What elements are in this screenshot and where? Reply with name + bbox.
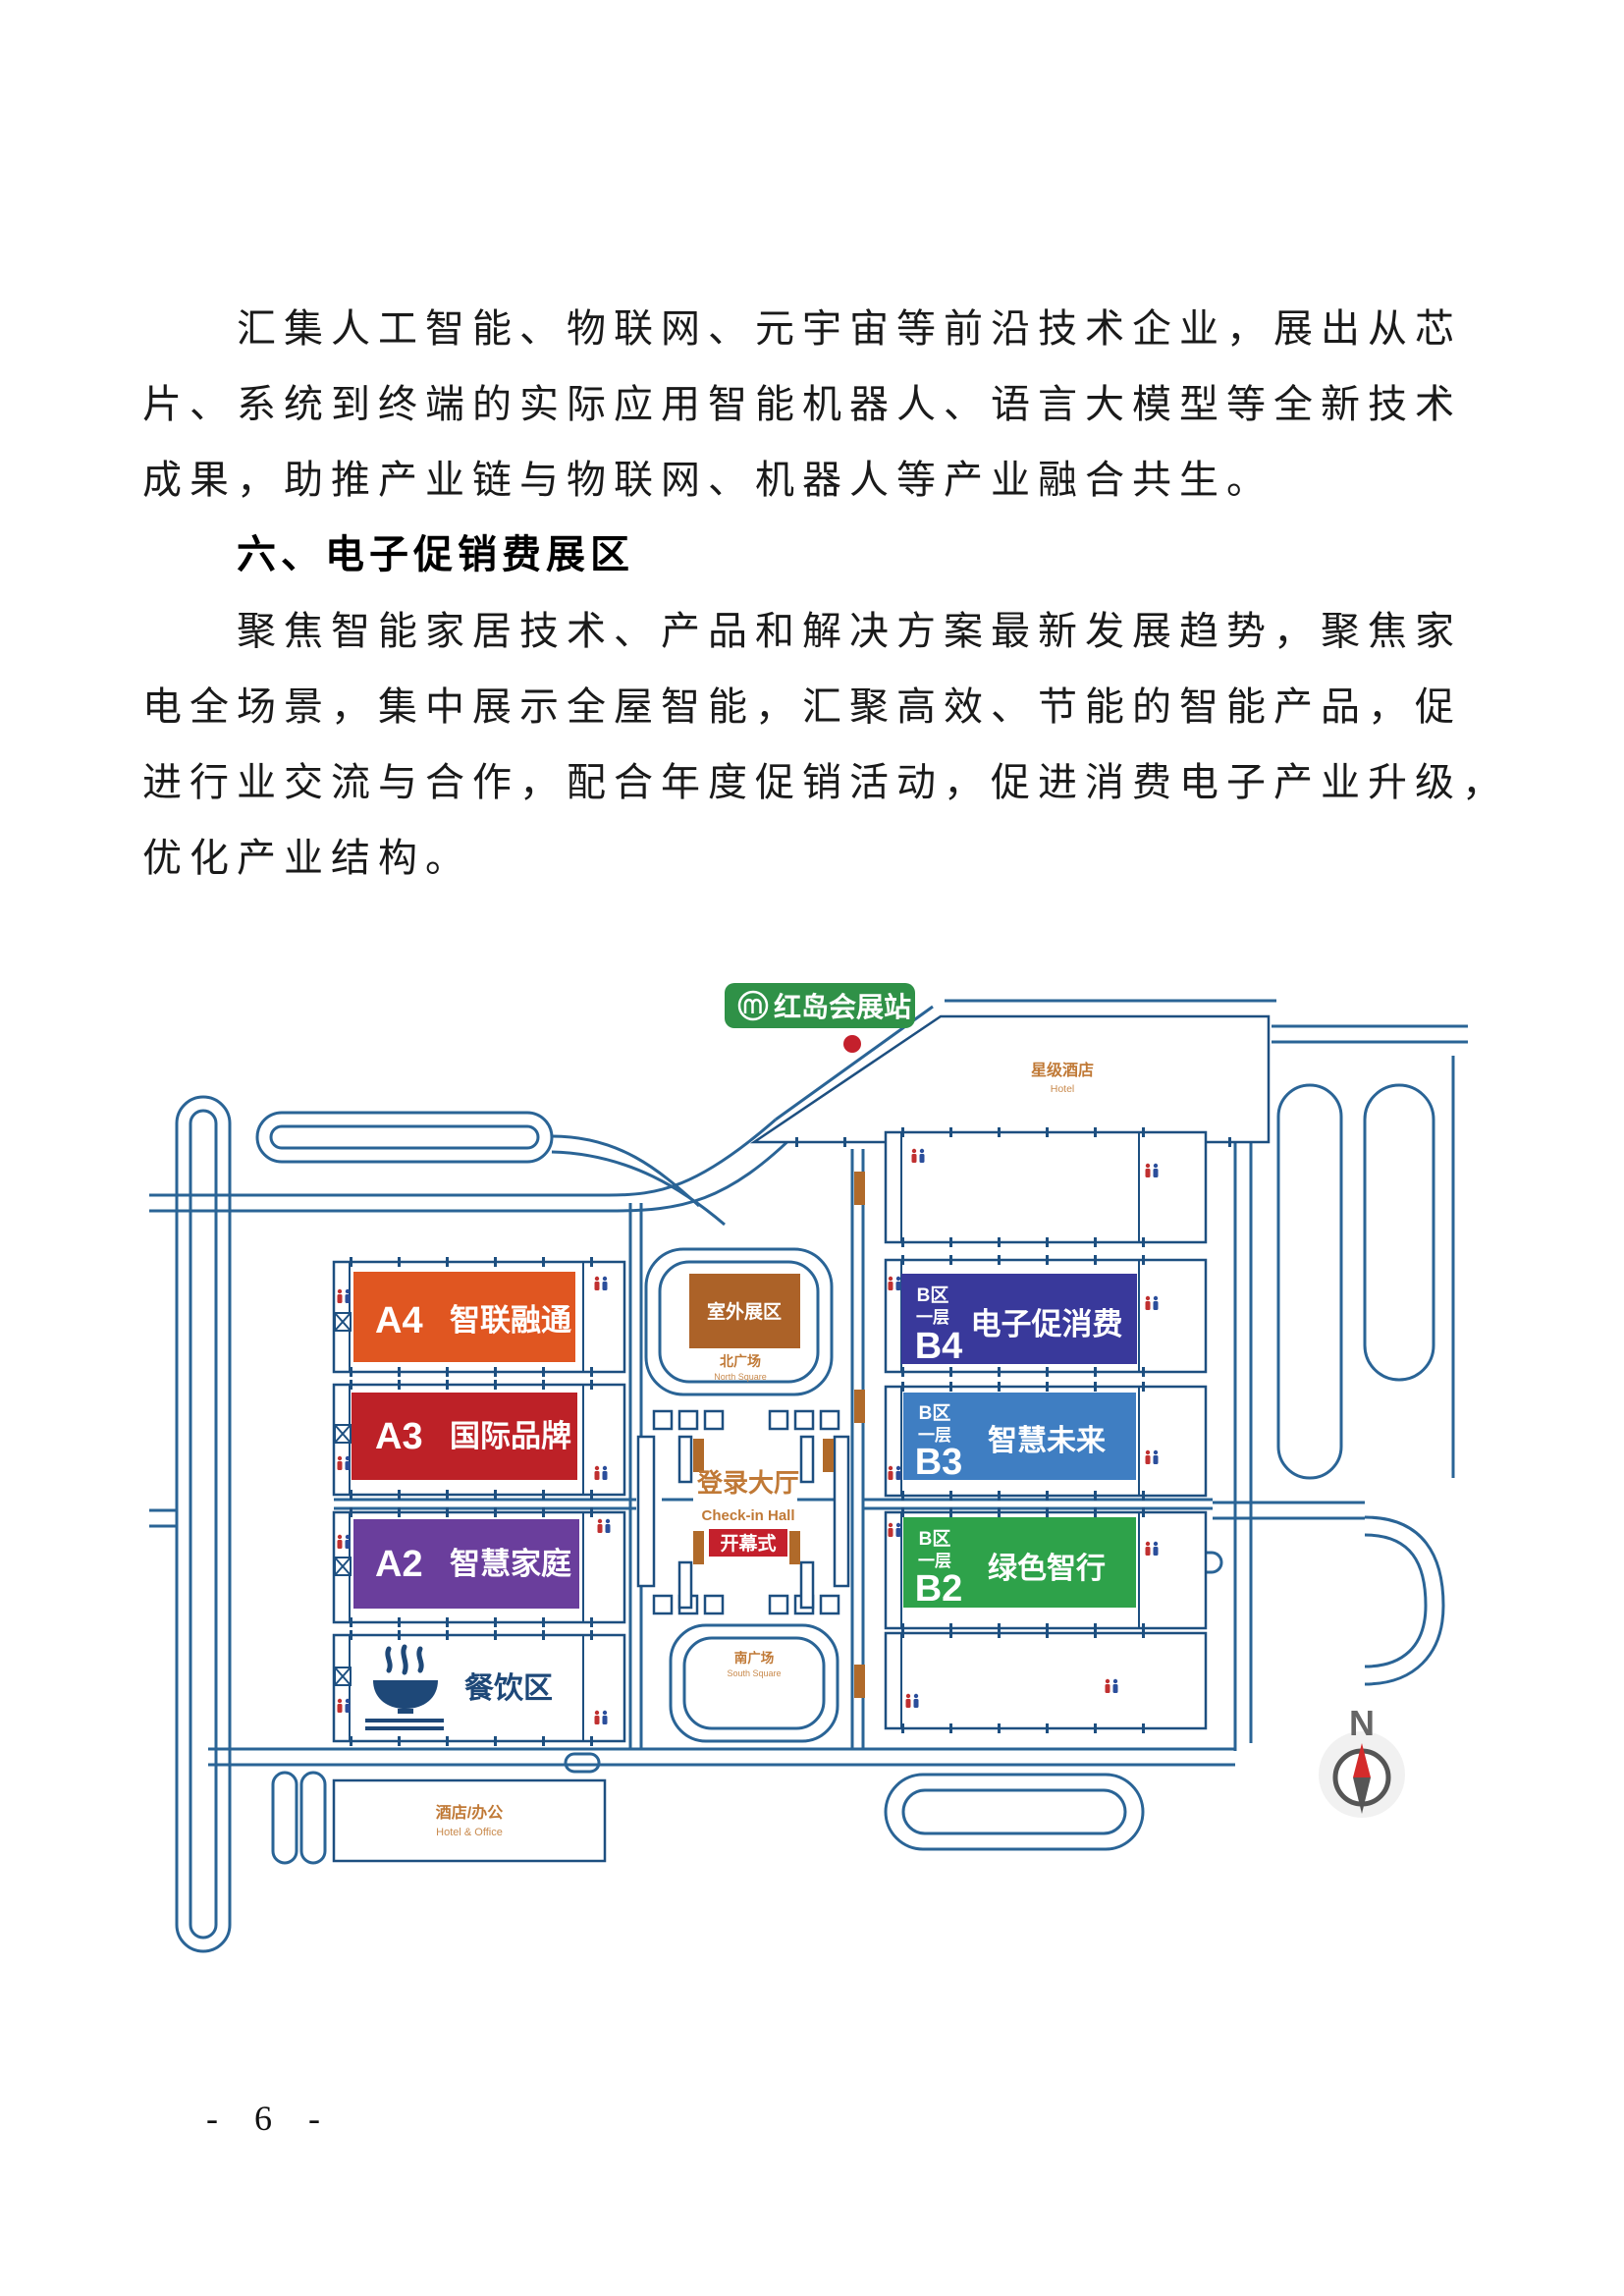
stairs-box-icon	[335, 1313, 351, 1331]
zone-b3-id: B3	[915, 1442, 963, 1483]
star-hotel-label-zh: 星级酒店	[1031, 1061, 1094, 1079]
zone-b4-floor: 一层	[916, 1308, 949, 1327]
document-page: 汇集人工智能、物联网、元宇宙等前沿技术企业，展出从芯 片、系统到终端的实际应用智…	[0, 0, 1624, 2296]
dining-label: 餐饮区	[464, 1672, 553, 1705]
door-mark	[823, 1439, 834, 1472]
zone-b4-id: B4	[915, 1326, 963, 1367]
outdoor-label: 室外展区	[707, 1300, 782, 1323]
venue-map: 星级酒店 Hotel 红岛会展站 A4 智联融通	[147, 967, 1483, 2038]
paragraph2-line2: 电全场景，集中展示全屋智能，汇聚高效、节能的智能产品，促	[142, 669, 1492, 744]
zone-b3-area: B区	[919, 1403, 951, 1424]
door-mark	[789, 1531, 800, 1564]
station-dot	[843, 1035, 861, 1053]
zone-b3-name: 智慧未来	[988, 1425, 1106, 1457]
zone-a4-id: A4	[375, 1300, 423, 1341]
body-text: 汇集人工智能、物联网、元宇宙等前沿技术企业，展出从芯 片、系统到终端的实际应用智…	[142, 291, 1492, 896]
zone-a3-name: 国际品牌	[450, 1419, 571, 1453]
station-label: 红岛会展站	[774, 991, 911, 1022]
checkin-hall: 登录大厅 Check-in Hall 开幕式	[638, 1411, 848, 1613]
north-square: 室外展区 北广场 North Square	[646, 1249, 832, 1394]
hall-b3: B区 一层 B3 智慧未来	[886, 1387, 1206, 1496]
zone-b2-id: B2	[915, 1568, 963, 1610]
hall-a4: A4 智联融通	[334, 1262, 624, 1372]
hall-b2: B区 一层 B2 绿色智行	[886, 1512, 1206, 1628]
zone-a3-id: A3	[375, 1416, 423, 1457]
south-square: 南广场 South Square	[671, 1625, 838, 1741]
door-mark	[854, 1390, 865, 1423]
hotel-office-building: 酒店/办公 Hotel & Office	[334, 1780, 605, 1861]
opening-ceremony-label: 开幕式	[720, 1532, 776, 1555]
stairs-box-icon	[335, 1425, 351, 1443]
door-mark	[693, 1439, 704, 1472]
stairs-box-icon	[335, 1667, 351, 1685]
zone-b2-name: 绿色智行	[988, 1553, 1106, 1585]
zone-b4-name: 电子促消费	[971, 1307, 1123, 1341]
paragraph1-line1: 汇集人工智能、物联网、元宇宙等前沿技术企业，展出从芯	[142, 291, 1492, 366]
zone-b2-area: B区	[919, 1529, 951, 1550]
paragraph1-line2: 片、系统到终端的实际应用智能机器人、语言大模型等全新技术	[142, 366, 1492, 442]
hall-b4: B区 一层 B4 电子促消费	[886, 1260, 1206, 1372]
compass-n-label: N	[1349, 1703, 1375, 1743]
checkin-label-zh: 登录大厅	[696, 1468, 799, 1498]
paragraph2-line3: 进行业交流与合作，配合年度促销活动，促进消费电子产业升级，	[142, 744, 1492, 820]
hall-a3: A3 国际品牌	[334, 1385, 624, 1495]
door-mark	[854, 1172, 865, 1205]
page-number: - 6 -	[206, 2098, 334, 2139]
south-square-label-zh: 南广场	[734, 1650, 775, 1666]
north-square-label-zh: 北广场	[720, 1353, 761, 1369]
zone-b4-area: B区	[917, 1285, 949, 1306]
paragraph2-line1: 聚焦智能家居技术、产品和解决方案最新发展趋势，聚焦家	[142, 593, 1492, 669]
zone-a2-name: 智慧家庭	[450, 1547, 571, 1581]
star-hotel-label-en: Hotel	[1051, 1083, 1075, 1095]
metro-station-badge: 红岛会展站	[725, 983, 915, 1053]
south-square-label-en: South Square	[727, 1668, 781, 1678]
paragraph1-line3: 成果，助推产业链与物联网、机器人等产业融合共生。	[142, 442, 1492, 518]
hall-right-bottom	[886, 1633, 1206, 1728]
hall-right-top	[886, 1132, 1206, 1242]
compass-icon: N	[1319, 1703, 1405, 1818]
section-heading: 六、电子促销费展区	[142, 518, 1492, 593]
north-square-label-en: North Square	[714, 1372, 767, 1382]
hall-dining: 餐饮区	[334, 1635, 624, 1741]
door-mark	[854, 1665, 865, 1698]
zone-a4-name: 智联融通	[450, 1303, 571, 1338]
hall-a2: A2 智慧家庭	[334, 1512, 624, 1622]
paragraph2-line4: 优化产业结构。	[142, 820, 1492, 896]
stairs-box-icon	[335, 1558, 351, 1575]
checkin-label-en: Check-in Hall	[701, 1507, 794, 1524]
door-mark	[693, 1531, 704, 1564]
hotel-office-label-zh: 酒店/办公	[436, 1803, 503, 1822]
zone-a2-id: A2	[375, 1544, 423, 1585]
hotel-office-label-en: Hotel & Office	[436, 1827, 503, 1838]
